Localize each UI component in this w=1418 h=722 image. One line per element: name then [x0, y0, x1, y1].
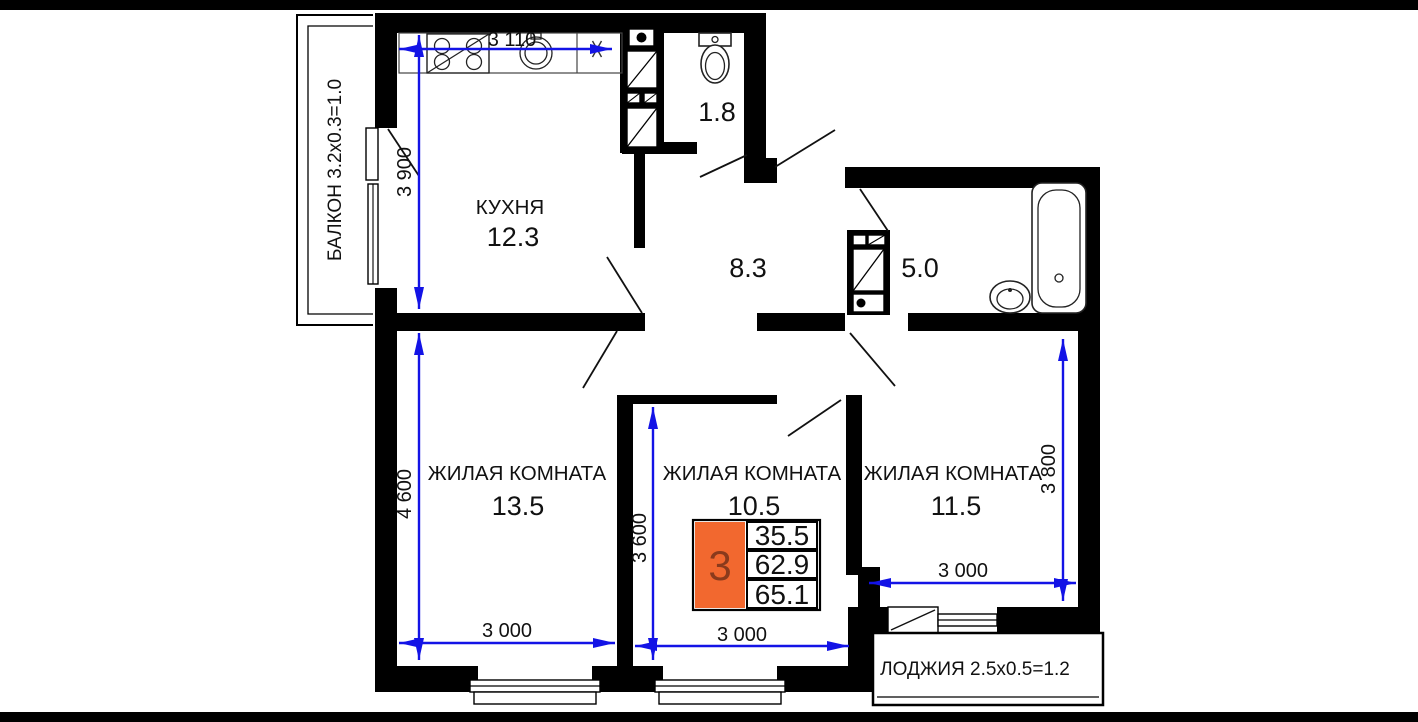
- dim-label: 3 000: [717, 624, 767, 646]
- wall-between-living-middle-right: [846, 395, 862, 575]
- apartment-summary-table: 3 35.5 62.9 65.1: [693, 520, 820, 610]
- dimension-living-left-width: 3 000: [399, 620, 615, 643]
- dimension-living-left-depth: 4 600: [394, 333, 419, 660]
- window-living-middle: [655, 666, 785, 704]
- dimension-kitchen-depth: 3 900: [394, 35, 419, 309]
- wc-area: 1.8: [698, 97, 736, 127]
- balcony-door-jamb: [366, 128, 378, 180]
- balcony-label: БАЛКОН 3.2x0.3=1.0: [325, 79, 346, 261]
- vent-mini-1: [853, 235, 866, 245]
- bathtub-outer: [1032, 183, 1086, 313]
- toilet-icon: [699, 33, 731, 83]
- room-count-value: 3: [708, 542, 731, 589]
- dim-label: 3 900: [394, 147, 416, 197]
- window-sill: [659, 692, 781, 704]
- dim-label: 3 000: [482, 620, 532, 642]
- wall-hall-bottom-left: [757, 313, 845, 331]
- kitchen-vent-shaft-icon: [620, 13, 664, 153]
- loggia-label: ЛОДЖИЯ 2.5x0.5=1.2: [880, 659, 1070, 680]
- bathroom-vent-shaft-icon: [847, 230, 890, 315]
- vent-dot: [637, 33, 647, 43]
- burner: [435, 39, 450, 54]
- total-area-value: 65.1: [755, 579, 810, 610]
- wall-wc-right: [744, 13, 766, 158]
- vent-dot: [857, 299, 866, 308]
- wall-hall-bottom-right: [908, 313, 1100, 331]
- dimension-living-middle-width: 3 000: [635, 624, 849, 646]
- living-left-area: 13.5: [492, 491, 545, 521]
- wall-loggia-band-left: [862, 607, 888, 633]
- living-right-door-leaf: [850, 333, 895, 386]
- wc-door-leaf: [700, 155, 747, 177]
- living-area-value: 35.5: [755, 520, 810, 551]
- bottom-frame-bar: [0, 712, 1418, 722]
- dim-label: 3 600: [629, 513, 651, 563]
- balcony: БАЛКОН 3.2x0.3=1.0: [297, 15, 373, 325]
- burner: [435, 55, 450, 70]
- wall-kitchen-bottom: [397, 313, 645, 331]
- dimension-living-right-width: 3 000: [869, 560, 1076, 583]
- dim-label: 3 110: [488, 29, 537, 51]
- entrance-door-leaf: [775, 130, 835, 167]
- bathtub-icon: [1032, 183, 1086, 313]
- living-middle-name: ЖИЛАЯ КОМНАТА: [663, 462, 842, 485]
- window-niche: [478, 666, 592, 681]
- kitchen-name: КУХНЯ: [476, 196, 544, 219]
- wall-wc-foot: [744, 158, 777, 183]
- dim-label: 3 000: [938, 560, 988, 582]
- sink-outer: [990, 281, 1030, 313]
- bathroom-sink-icon: [990, 281, 1030, 313]
- window-niche: [663, 666, 777, 681]
- dim-label: 4 600: [394, 469, 416, 519]
- apartment-area-value: 62.9: [755, 549, 810, 580]
- bathroom-door-leaf: [860, 189, 888, 231]
- window-sill: [474, 692, 596, 704]
- kitchen-door-leaf: [607, 257, 642, 313]
- wall-loggia-band-right: [997, 607, 1100, 633]
- wall-top: [375, 13, 766, 33]
- living-middle-door-leaf: [788, 400, 841, 436]
- burner: [467, 55, 482, 70]
- top-frame-bar: [0, 0, 1418, 10]
- toilet-tank: [699, 33, 731, 46]
- living-left-door-leaf: [583, 331, 617, 388]
- living-right-area: 11.5: [931, 491, 982, 521]
- floor-plan-canvas: БАЛКОН 3.2x0.3=1.0: [0, 0, 1418, 722]
- wall-living-middle-top: [617, 395, 777, 404]
- kitchen-area: 12.3: [487, 222, 540, 252]
- wall-step-loggia-corner: [858, 567, 880, 611]
- stove-icon: [427, 34, 489, 73]
- sink-tap-dot: [1008, 288, 1012, 292]
- floor-plan-page: БАЛКОН 3.2x0.3=1.0: [0, 0, 1418, 722]
- living-left-name: ЖИЛАЯ КОМНАТА: [428, 462, 607, 485]
- hallway-area: 8.3: [729, 253, 767, 283]
- window-living-left: [470, 666, 600, 704]
- living-right-name: ЖИЛАЯ КОМНАТА: [864, 462, 1043, 485]
- bathroom-area: 5.0: [901, 253, 939, 283]
- wall-kitchen-hall-partition: [634, 154, 645, 248]
- living-middle-area: 10.5: [728, 491, 781, 521]
